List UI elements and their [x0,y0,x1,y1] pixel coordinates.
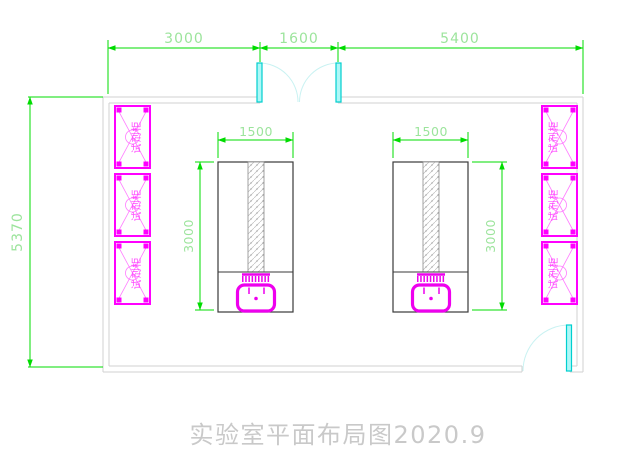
cabinet-label: 试剂柜 [547,121,560,154]
reagent-cabinet: 试剂柜 [115,106,150,168]
reagent-cabinet: 试剂柜 [115,242,150,304]
bench-hatched-strip [423,162,439,272]
dim-room-height: 5370 [10,212,26,252]
bench-hatched-strip [248,162,264,272]
cabinet-label: 试剂柜 [130,189,143,222]
reagent-cabinet: 试剂柜 [542,174,577,236]
dim-bench-width: 1500 [414,124,448,139]
bench-right-length-dimension: 3000 [472,162,507,310]
dim-bench-width: 1500 [239,124,273,139]
dim-top-left: 3000 [164,31,204,47]
reagent-cabinet: 试剂柜 [542,106,577,168]
left-dimension: 5370 [10,97,103,367]
floor-plan-canvas: 3000 1600 5400 5370 试剂柜 [0,0,619,469]
dim-top-right: 5400 [440,31,480,47]
cabinet-label: 试剂柜 [130,121,143,154]
double-door-top [257,63,341,102]
room-walls [103,97,583,372]
door-swing-arc [259,63,298,102]
bench-left-width-dimension: 1500 [218,124,293,158]
cabinet-column-left: 试剂柜 试剂柜 试剂柜 [115,106,150,304]
door-swing-arc [523,325,569,371]
door-leaf [336,63,341,102]
lab-bench-right: 1500 3000 [393,124,507,312]
cabinet-label: 试剂柜 [547,257,560,290]
door-swing-arc [300,63,339,102]
top-dimension-chain: 3000 1600 5400 [108,31,583,94]
lab-bench-left: 1500 3000 [181,124,293,312]
dim-top-middle: 1600 [279,31,319,47]
dim-bench-length: 3000 [483,219,498,253]
bench-right-width-dimension: 1500 [393,124,468,158]
bench-left-length-dimension: 3000 [181,162,214,310]
dim-bench-length: 3000 [181,219,196,253]
cabinet-label: 试剂柜 [547,189,560,222]
door-leaf [567,325,572,371]
reagent-cabinet: 试剂柜 [115,174,150,236]
door-leaf [257,63,262,102]
drawing-title: 实验室平面布局图2020.9 [190,421,487,449]
reagent-cabinet: 试剂柜 [542,242,577,304]
cabinet-column-right: 试剂柜 试剂柜 试剂柜 [542,106,577,304]
cabinet-label: 试剂柜 [130,257,143,290]
door-bottom-right [523,325,572,371]
